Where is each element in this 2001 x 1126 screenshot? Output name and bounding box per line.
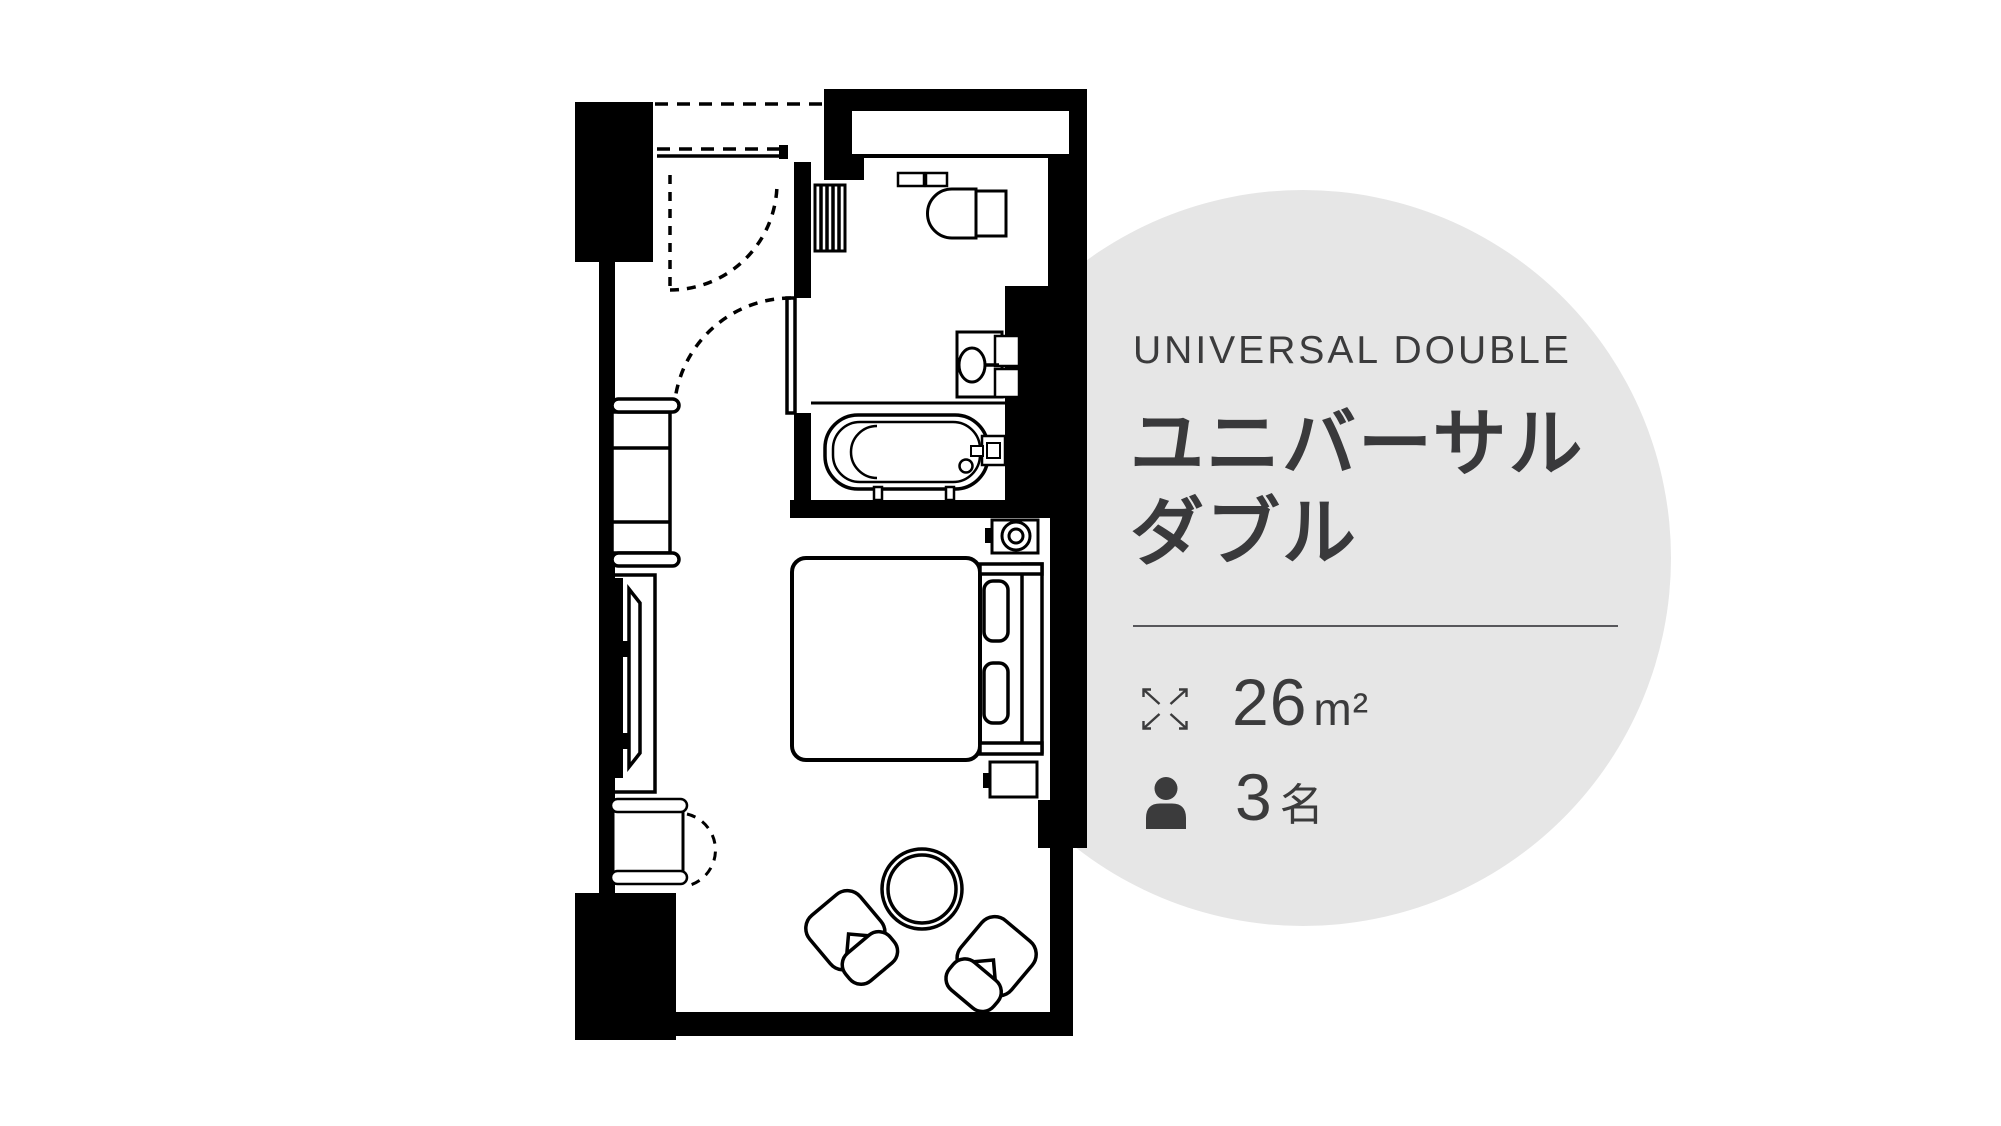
entry-floor [653, 103, 824, 162]
wall-entry-tick [779, 145, 788, 159]
pillow [984, 581, 1008, 641]
person-icon [1143, 777, 1189, 829]
table [882, 849, 962, 929]
tub-foot [874, 487, 882, 500]
tv-wall-mount [615, 578, 623, 778]
lamp-icon [1002, 522, 1030, 550]
toilet-shelf-2 [926, 173, 947, 186]
tv-icon [629, 589, 640, 767]
wall-right-step [1038, 800, 1087, 848]
wall-bathroom-left-upper [794, 162, 811, 298]
room-type-ja-line2: ダブル [1130, 491, 1358, 574]
room-size-unit: m² [1313, 683, 1369, 735]
pillow-2 [984, 663, 1008, 723]
shower-partition [815, 185, 845, 251]
wall-right-lower [1050, 848, 1073, 1036]
room-type-ja-line1: ユニバーサル [1130, 402, 1585, 485]
wall-right-middle [1050, 518, 1087, 800]
bathroom-sink [957, 332, 1019, 397]
room-type-en: UNIVERSAL DOUBLE [1133, 331, 1572, 370]
nightstand-2 [983, 762, 1037, 797]
wall-right-upper [1048, 158, 1087, 518]
wall-bathroom-right [1005, 286, 1050, 518]
floor-plan [575, 85, 1090, 1040]
wall-bottom [655, 1012, 1073, 1036]
wall-left [599, 262, 615, 893]
room-size-value: 26m² [1232, 669, 1369, 735]
room-capacity-value: 3名 [1235, 764, 1325, 830]
dresser [612, 399, 679, 566]
nightstand-lamp [985, 520, 1038, 553]
window-recess [852, 111, 1069, 154]
room-capacity-row: 3名 [1138, 764, 1325, 830]
wall-pillar-topleft [575, 102, 653, 262]
expand-arrows-icon [1138, 683, 1192, 735]
room-size-row: 26m² [1138, 669, 1369, 735]
page: UNIVERSAL DOUBLE ユニバーサルダブル 26m² 3名 [0, 0, 2001, 1126]
tub-foot-2 [946, 487, 954, 500]
divider-line [1133, 625, 1618, 627]
bed [792, 558, 980, 760]
room-type-ja: ユニバーサルダブル [1130, 399, 1585, 577]
tub-faucet [982, 436, 1005, 465]
wall-bathroom-bottom [790, 500, 1005, 518]
toilet-shelf [898, 173, 924, 186]
room-capacity-suffix: 名 [1280, 781, 1325, 830]
